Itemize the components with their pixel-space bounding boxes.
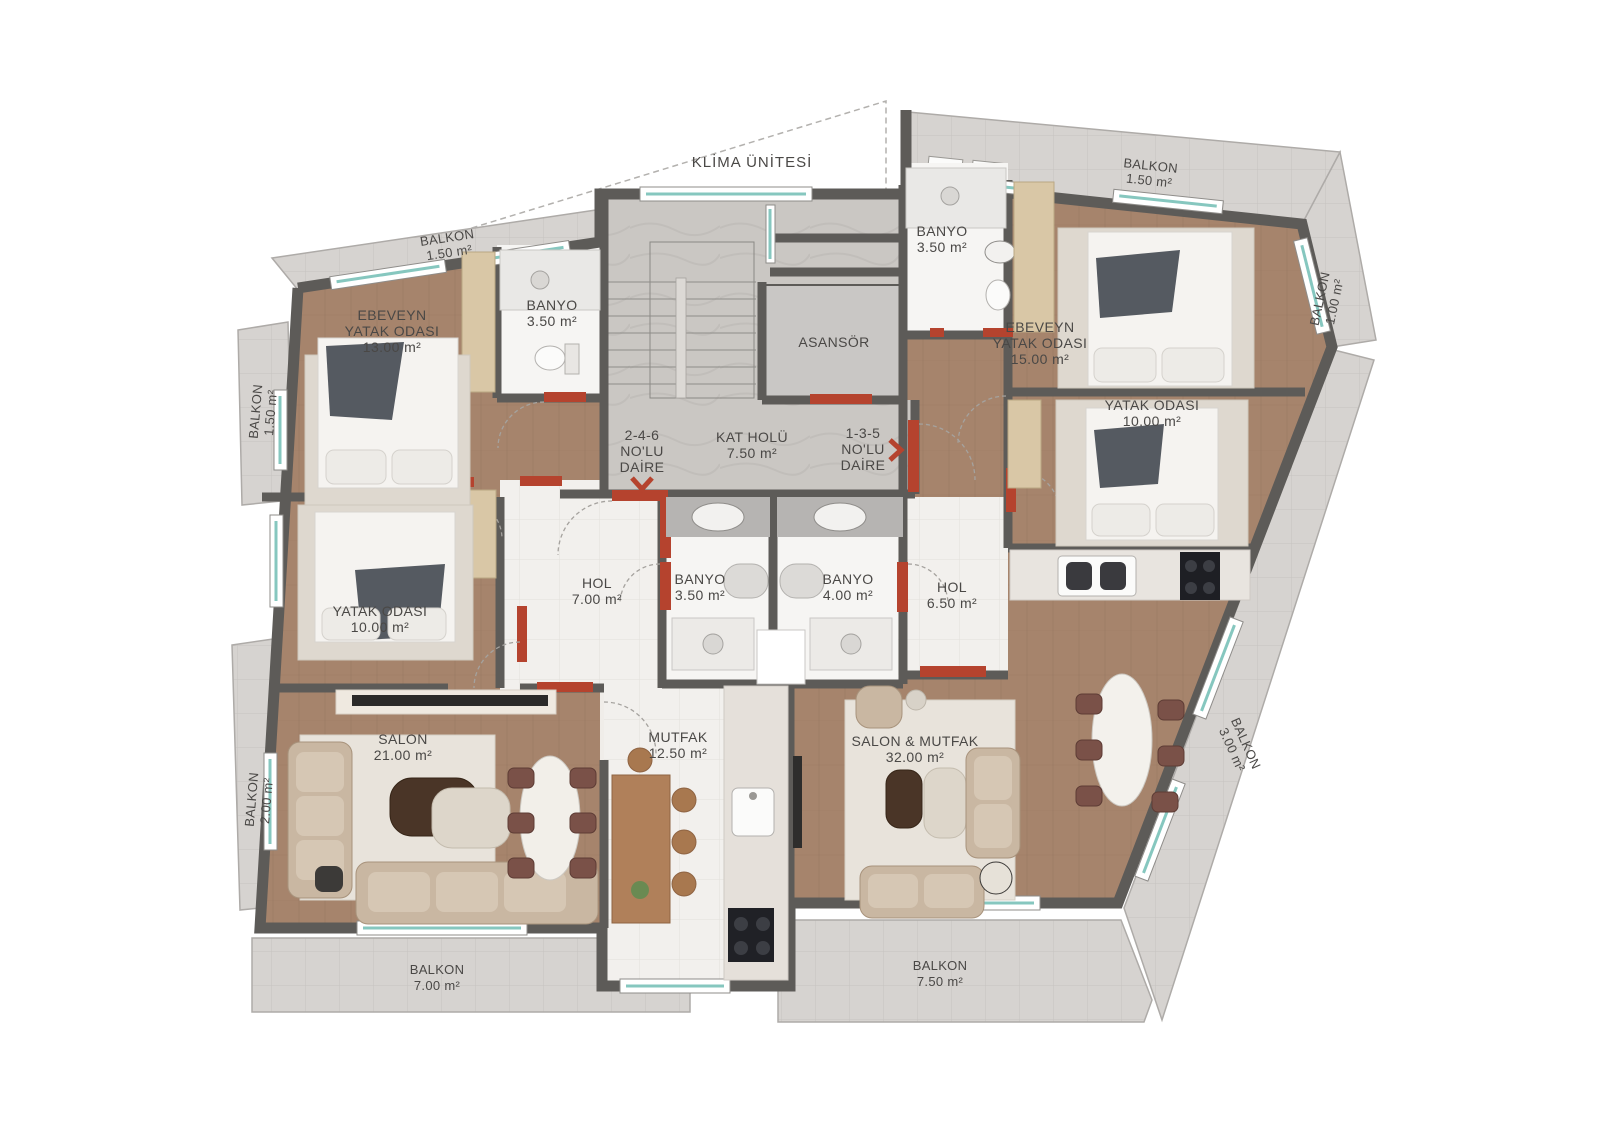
coffee-table [886, 770, 922, 828]
plant-icon [631, 881, 649, 899]
bed-ebeveyn-246 [305, 338, 470, 505]
floor-plan-page: KLİMA ÜNİTESİ ASANSÖR [0, 0, 1600, 1131]
yatak-135-area: 10.00 m² [1123, 413, 1181, 429]
banyo-246-ust-area: 3.50 m² [527, 313, 577, 329]
yatak-246-area: 10.00 m² [351, 619, 409, 635]
klima-label: KLİMA ÜNİTESİ [692, 153, 813, 171]
bathtub-icon [780, 564, 824, 598]
bathtub-icon [724, 564, 768, 598]
elevator: ASANSÖR [765, 285, 903, 398]
banyo-135-label: BANYO [822, 571, 873, 587]
svg-text:7.50 m²: 7.50 m² [917, 974, 964, 989]
tv-icon [352, 695, 548, 706]
chair [1076, 694, 1102, 714]
banyo-135-ust-label: BANYO [916, 223, 967, 239]
chair [570, 768, 596, 788]
sink-icon [814, 503, 866, 531]
window-icon [640, 187, 812, 201]
banyo-246-label: BANYO [674, 571, 725, 587]
daire-135-label-1: 1-3-5 [846, 425, 881, 441]
chair [1076, 740, 1102, 760]
ebeveyn-135-label-1: EBEVEYN [1006, 319, 1075, 335]
chair [570, 858, 596, 878]
hol-135-label: HOL [937, 579, 967, 595]
ebeveyn-135-label-2: YATAK ODASI [993, 335, 1088, 351]
banyo-135-area: 4.00 m² [823, 587, 873, 603]
chair [1152, 792, 1178, 812]
yatak-135-label: YATAK ODASI [1105, 397, 1200, 413]
sink-icon [692, 503, 744, 531]
window-icon [620, 979, 730, 993]
balcony-bottom-right-label: BALKON 7.50 m² [913, 958, 968, 989]
salon-mutfak-135-label: SALON & MUTFAK [852, 733, 979, 749]
dining-table [1092, 674, 1152, 806]
chair [570, 813, 596, 833]
svg-text:7.00 m²: 7.00 m² [414, 978, 461, 993]
balcony-bottom-left-label: BALKON 7.00 m² [410, 962, 465, 993]
chair [508, 768, 534, 788]
side-stool [315, 866, 343, 892]
ebeveyn-246-label-1: EBEVEYN [358, 307, 427, 323]
mutfak-246-label: MUTFAK [648, 729, 707, 745]
sink-icon [985, 241, 1015, 263]
window-icon [270, 515, 283, 607]
kitchen-table [612, 775, 670, 923]
ebeveyn-135-area: 15.00 m² [1011, 351, 1069, 367]
yatak-246-label: YATAK ODASI [333, 603, 428, 619]
toilet-icon [535, 346, 565, 370]
salon-mutfak-135-area: 32.00 m² [886, 749, 944, 765]
svg-text:BALKON: BALKON [913, 958, 968, 973]
salon-246-label: SALON [378, 731, 427, 747]
chaise [924, 768, 966, 838]
stair-rail [676, 278, 686, 398]
banyo-135-ust-area: 3.50 m² [917, 239, 967, 255]
shower-icon [531, 271, 549, 289]
armchair [856, 686, 902, 728]
hol-246-area: 7.00 m² [572, 591, 622, 607]
kat-holu-label: KAT HOLÜ [716, 428, 788, 445]
floor-plan-drawing: KLİMA ÜNİTESİ ASANSÖR [0, 0, 1600, 1131]
tv-icon [793, 756, 802, 848]
side-stool [980, 862, 1012, 894]
svg-text:BALKON: BALKON [410, 962, 465, 977]
chair [508, 813, 534, 833]
daire-135-label-3: DAİRE [841, 456, 886, 473]
window-icon [766, 205, 775, 263]
balcony-left-lower-label: BALKON 2.00 m² [242, 772, 277, 829]
bed-ebeveyn-135 [1058, 228, 1254, 388]
daire-246-label-1: 2-4-6 [625, 427, 660, 443]
chair [1076, 786, 1102, 806]
balcony-top-right-label: BALKON 1.50 m² [1121, 155, 1178, 191]
mutfak-135-furniture [1010, 550, 1250, 600]
daire-135-label-2: NO'LU [841, 441, 885, 457]
salon-246-area: 21.00 m² [374, 747, 432, 763]
light-well [757, 630, 805, 684]
chaise [432, 788, 510, 848]
ebeveyn-246-area: 13.00 m² [363, 339, 421, 355]
daire-246-label-3: DAİRE [620, 458, 665, 475]
toilet-icon [986, 280, 1010, 310]
shower-icon [941, 187, 959, 205]
stove-icon [728, 908, 774, 962]
chair [508, 858, 534, 878]
ebeveyn-246-label-2: YATAK ODASI [345, 323, 440, 339]
stool [672, 830, 696, 854]
bed-yatak-246 [298, 505, 473, 660]
stove-icon [1180, 552, 1220, 600]
balcony-left-upper-label: BALKON 1.50 m² [246, 384, 281, 441]
hol-135-area: 6.50 m² [927, 595, 977, 611]
stool [672, 872, 696, 896]
chair [1158, 700, 1184, 720]
kat-holu-area: 7.50 m² [727, 445, 777, 461]
elevator-label: ASANSÖR [798, 333, 869, 350]
chair [1158, 746, 1184, 766]
stool [672, 788, 696, 812]
mutfak-246-area: 12.50 m² [649, 745, 707, 761]
side-table [906, 690, 926, 710]
daire-246-label-2: NO'LU [620, 443, 664, 459]
banyo-246-area: 3.50 m² [675, 587, 725, 603]
banyo-246-ust-label: BANYO [526, 297, 577, 313]
hol-246-label: HOL [582, 575, 612, 591]
